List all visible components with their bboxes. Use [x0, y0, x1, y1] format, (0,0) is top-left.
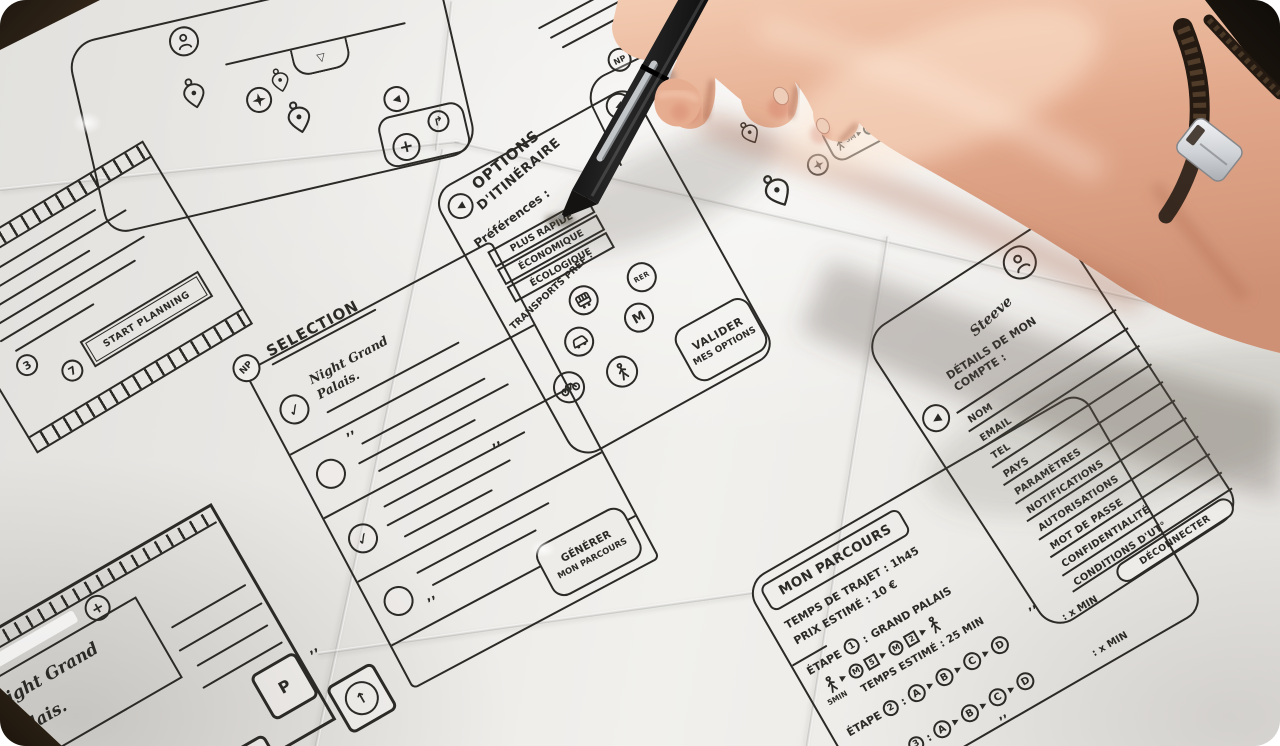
- step-number: 3: [20, 358, 33, 373]
- step-number-badge: 1: [841, 635, 863, 657]
- metro-icon: M: [886, 637, 906, 657]
- metro-letter: M: [630, 308, 649, 327]
- step-number-badge: 3: [906, 733, 928, 746]
- colon: :: [860, 632, 870, 645]
- stop-letter: D: [994, 638, 1007, 652]
- quote-marks: ’’: [997, 712, 1012, 728]
- back-icon: ◀: [917, 399, 956, 438]
- text-line: [179, 602, 263, 652]
- share-icon: ↱: [425, 108, 451, 134]
- checkbox-checked-icon: ✓: [274, 389, 315, 430]
- back-icon: ◀: [443, 188, 478, 223]
- mini-route-row: 5M ▶ M 5 ▶ M 4 ▶: [832, 89, 935, 152]
- step-number-badge: 7: [57, 355, 87, 385]
- enter-arrow-glyph: ↑: [352, 687, 372, 709]
- quote-marks: ’’: [345, 429, 361, 446]
- stop-badge: B: [932, 665, 957, 690]
- map-tab: ▽: [290, 38, 353, 78]
- start-planning-label: START PLANNING: [101, 289, 192, 350]
- step3-x-time: : x MIN: [1090, 630, 1130, 659]
- plus-glyph: +: [397, 136, 415, 159]
- bus-icon: [563, 280, 604, 321]
- stop-badge: B: [957, 701, 982, 726]
- arrow-right-icon: ▶: [879, 650, 888, 660]
- stop-letter: A: [910, 687, 922, 700]
- zoom-in-icon: +: [390, 130, 424, 164]
- stop-letter: D: [1019, 674, 1032, 688]
- line-number: 4: [906, 102, 914, 111]
- step-number: 7: [66, 363, 79, 378]
- check-glyph: ✓: [353, 527, 374, 550]
- text-line: [196, 624, 268, 667]
- metro-icon: M: [846, 660, 866, 680]
- arrow-right-icon: ▶: [915, 98, 922, 105]
- stop-letter: B: [938, 671, 950, 684]
- step-number: 3: [911, 738, 921, 746]
- arrow-right-icon: ▶: [979, 700, 988, 710]
- table-corner: [1202, 0, 1280, 100]
- metro-icon: M: [619, 297, 660, 338]
- profile-icon: [166, 23, 202, 59]
- stop-badge: A: [904, 681, 929, 706]
- metro-line-badge: 5: [863, 653, 881, 671]
- stop-badge: C: [985, 685, 1010, 710]
- stop-letter: A: [936, 723, 948, 736]
- arrow-right-icon: ▶: [954, 664, 963, 674]
- arrow-right-icon: ▶: [886, 114, 893, 121]
- walk-icon: [600, 350, 644, 394]
- back-arrow-glyph: ◀: [455, 199, 467, 212]
- quote-marks: ’’: [1027, 603, 1042, 619]
- line-number: 2: [907, 633, 916, 644]
- car-icon: [559, 321, 600, 362]
- back-arrow-glyph: ◀: [391, 93, 401, 105]
- arrow-right-icon: ▶: [926, 680, 935, 690]
- left-arrow-icon: ←: [761, 102, 777, 120]
- text-line: [538, 0, 620, 30]
- arrow-right-icon: ▶: [919, 627, 928, 637]
- line-number: 5: [867, 656, 876, 667]
- route-pill: 5M ▶ M 5 ▶ M 4 ▶: [817, 68, 950, 165]
- checkbox-checked-icon: ✓: [343, 518, 384, 559]
- step-label: ÉTAPE: [844, 708, 884, 738]
- back-icon: ◀: [381, 83, 412, 114]
- location-pin-icon: [268, 66, 293, 96]
- rer-icon: RER: [621, 257, 662, 298]
- text-line: [171, 584, 247, 629]
- np-logo-text: NP: [238, 360, 255, 377]
- np-logo: NP: [228, 349, 266, 387]
- person-glyph: [173, 31, 195, 53]
- quote-marks: ’’: [426, 594, 442, 611]
- metro-letter: M: [890, 642, 901, 654]
- keyboard-key: [222, 733, 288, 746]
- location-pin-icon: [282, 98, 317, 138]
- arrow-right-icon: ▶: [856, 130, 863, 137]
- metro-letter: M: [894, 108, 903, 118]
- triangle-down-icon: ▽: [315, 50, 326, 65]
- colon: :: [924, 730, 934, 743]
- stop-letter: C: [966, 655, 978, 668]
- metro-letter: M: [864, 124, 873, 134]
- profile-icon: [996, 239, 1043, 286]
- stop-badge: D: [1013, 669, 1038, 694]
- line-number: 5: [877, 118, 885, 127]
- step-number: 1: [847, 640, 857, 652]
- check-glyph: ✓: [284, 398, 305, 421]
- metro-line-badge: 2: [903, 630, 921, 648]
- arrow-right-icon: ▶: [839, 673, 848, 683]
- metro-letter: M: [850, 665, 861, 677]
- background-dark-edge: [1264, 144, 1280, 224]
- step-number-badge: 2: [880, 697, 902, 719]
- key-letter: P: [275, 675, 295, 697]
- checkbox-empty-icon: [311, 454, 352, 495]
- bracelet-clasp: [1174, 115, 1246, 184]
- stop-badge: D: [988, 633, 1013, 658]
- validate-options-button: VALIDER MES OPTIONS: [670, 293, 773, 386]
- step-number: 2: [886, 702, 896, 714]
- enter-icon: ↑: [339, 675, 385, 721]
- quote-marks: ’’: [308, 647, 324, 665]
- step2-x-time: : x MIN: [1060, 594, 1100, 623]
- whiteout-spot: [530, 540, 556, 558]
- stop-letter: C: [992, 691, 1004, 704]
- walk-duration: 5M: [844, 132, 857, 144]
- stop-badge: C: [960, 649, 985, 674]
- stop-letter: B: [964, 707, 976, 720]
- share-arrow-glyph: ↱: [432, 113, 445, 129]
- arrow-right-icon: ▶: [1007, 684, 1016, 694]
- step-number-badge: 3: [12, 350, 42, 380]
- whiteout-spot: [72, 112, 102, 134]
- back-arrow-glyph: ◀: [929, 410, 943, 426]
- compass-pin-icon: [803, 150, 833, 180]
- photo-wireframe-sketches: ▽ ◀ ↱ + 3 7: [0, 0, 1280, 746]
- arrow-right-icon: ▶: [981, 648, 990, 658]
- location-pin-icon: [735, 117, 765, 149]
- rer-label: RER: [633, 270, 651, 285]
- compass-pin-icon: [244, 84, 275, 115]
- stop-badge: A: [930, 717, 955, 742]
- location-pin-icon: [178, 75, 211, 113]
- colon: :: [898, 694, 908, 707]
- arrow-right-icon: ▶: [951, 716, 960, 726]
- location-pin-icon: [755, 167, 799, 215]
- sketch-mini-map: ← 5M ▶ M 5 ▶ M 4 ▶: [684, 32, 970, 273]
- back-arrow-glyph: ◀: [613, 99, 625, 112]
- keyboard-key-enter: ↑: [325, 661, 399, 735]
